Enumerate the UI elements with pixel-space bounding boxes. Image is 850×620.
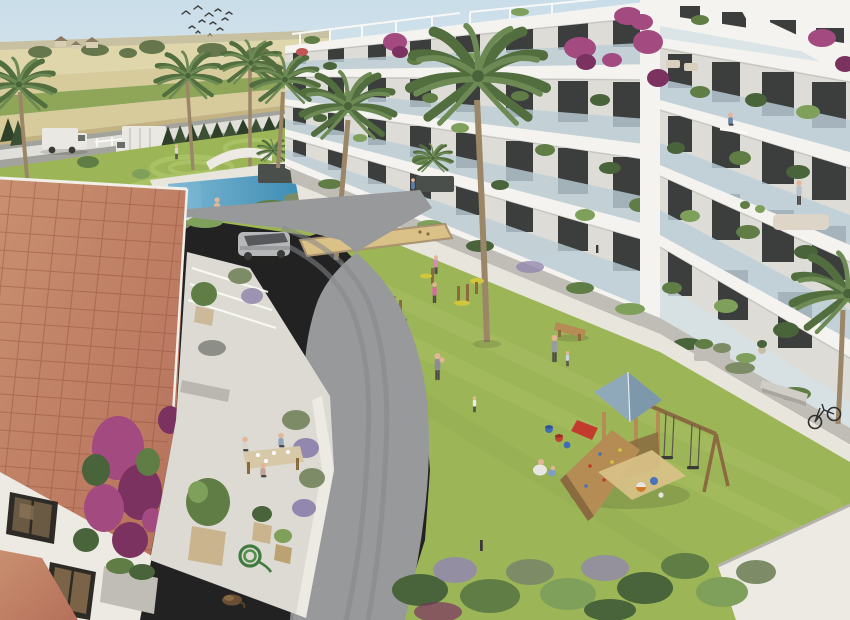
person-diner — [260, 463, 266, 478]
person-diner — [278, 433, 284, 448]
silver-suv — [236, 232, 292, 263]
sleeping-cat — [222, 595, 245, 609]
path-light — [480, 540, 483, 551]
render-canvas — [0, 0, 850, 620]
person-diner — [242, 437, 248, 452]
terrace-sculpture — [198, 340, 226, 356]
person-balcony-desk — [728, 113, 734, 126]
path-light — [596, 245, 598, 253]
architectural-render — [0, 0, 850, 620]
